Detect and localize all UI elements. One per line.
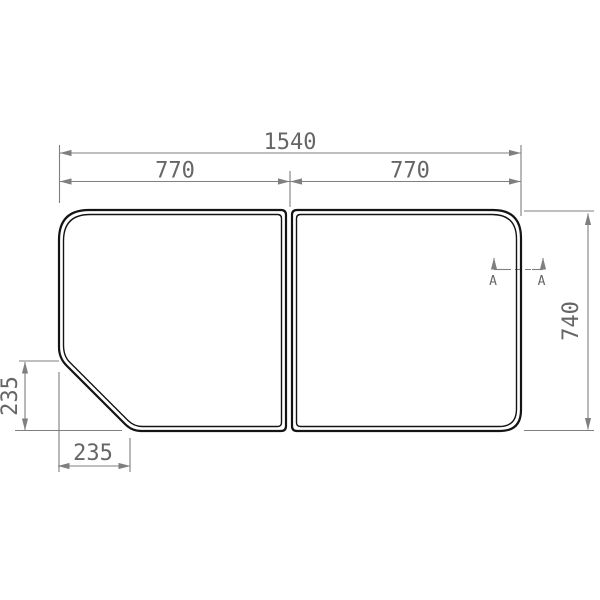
dim-text-overall-width: 1540 bbox=[264, 130, 317, 155]
technical-drawing-canvas: 1540 770 770 740 235 235 A A bbox=[0, 0, 600, 600]
bath-lid-dimension-drawing: 1540 770 770 740 235 235 A A bbox=[0, 0, 600, 600]
dim-text-corner-cut-width: 235 bbox=[73, 441, 113, 466]
panel-left-outer-outline bbox=[59, 210, 286, 431]
section-label-right: A bbox=[538, 274, 546, 289]
section-cut-marker bbox=[494, 258, 543, 270]
dim-text-right-panel-width: 770 bbox=[390, 159, 430, 184]
panel-right-outer-outline bbox=[292, 210, 521, 431]
dim-text-corner-cut-height: 235 bbox=[0, 376, 23, 416]
panel-right-inner-outline bbox=[297, 215, 517, 427]
dimension-lines-group bbox=[15, 145, 594, 472]
section-label-left: A bbox=[489, 274, 497, 289]
dim-text-overall-height: 740 bbox=[559, 301, 584, 341]
dim-text-left-panel-width: 770 bbox=[155, 159, 195, 184]
panels-group bbox=[59, 210, 521, 431]
